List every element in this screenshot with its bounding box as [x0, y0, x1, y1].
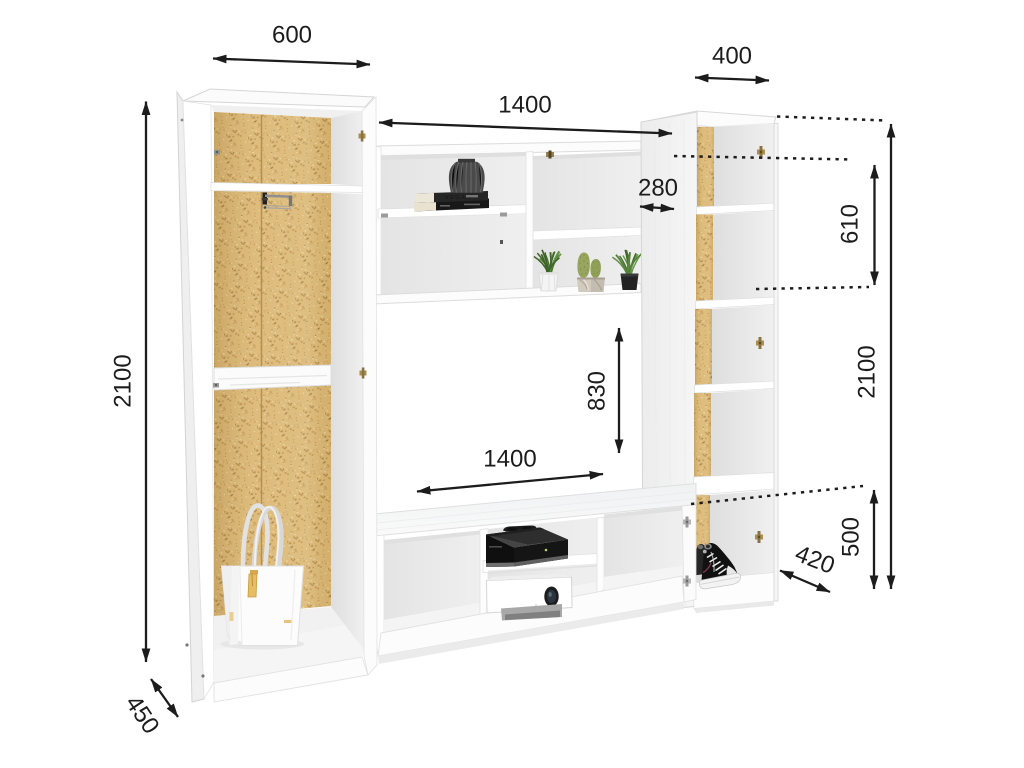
svg-text:830: 830 — [584, 371, 611, 411]
svg-text:610: 610 — [837, 204, 864, 244]
svg-text:1400: 1400 — [498, 92, 551, 119]
svg-text:1400: 1400 — [483, 446, 536, 473]
svg-text:400: 400 — [712, 43, 752, 70]
svg-text:2100: 2100 — [110, 354, 137, 407]
svg-text:2100: 2100 — [854, 345, 881, 398]
svg-text:500: 500 — [838, 517, 865, 557]
svg-text:280: 280 — [638, 175, 678, 202]
svg-text:600: 600 — [272, 22, 312, 49]
